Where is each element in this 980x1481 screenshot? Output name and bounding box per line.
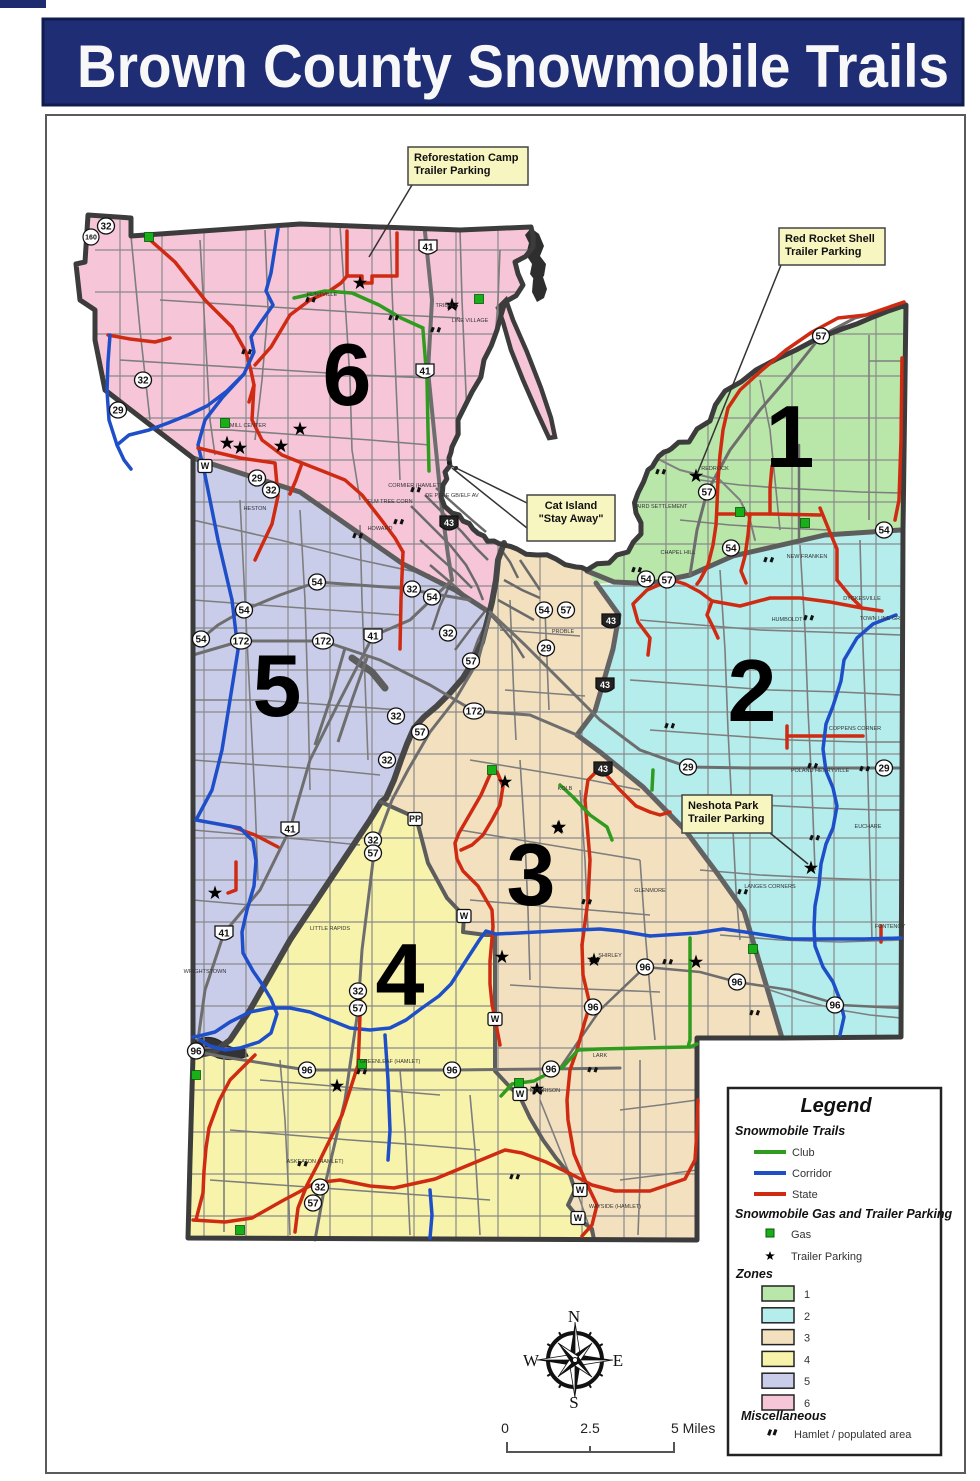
svg-text:DE PERE GB/ELF AV: DE PERE GB/ELF AV xyxy=(425,493,479,499)
svg-text:LANGES CORNERS: LANGES CORNERS xyxy=(744,884,796,890)
svg-text:LITTLE RAPIDS: LITTLE RAPIDS xyxy=(310,926,350,932)
svg-text:Red Rocket Shell: Red Rocket Shell xyxy=(785,233,875,245)
svg-text:WAYSIDE (HAMLET): WAYSIDE (HAMLET) xyxy=(589,1204,641,1210)
svg-text:Legend: Legend xyxy=(800,1095,872,1117)
svg-text:SHIRLEY: SHIRLEY xyxy=(598,953,622,959)
svg-text:41: 41 xyxy=(367,632,379,643)
svg-text:W: W xyxy=(574,1213,583,1223)
svg-text:CHAPEL HILL: CHAPEL HILL xyxy=(661,550,696,556)
svg-text:Neshota Park: Neshota Park xyxy=(688,800,759,812)
svg-text:54: 54 xyxy=(725,544,737,555)
svg-text:Brown County Snowmobile Trails: Brown County Snowmobile Trails xyxy=(77,33,949,100)
svg-text:172: 172 xyxy=(315,637,332,648)
svg-text:FLINTVILLE: FLINTVILLE xyxy=(307,292,338,298)
svg-text:5: 5 xyxy=(253,636,302,735)
svg-text:W: W xyxy=(516,1089,525,1099)
svg-text:EUCHARE: EUCHARE xyxy=(855,824,882,830)
svg-text:2: 2 xyxy=(728,641,777,740)
svg-text:160: 160 xyxy=(85,235,97,242)
svg-text:CORMIER (HAMLET): CORMIER (HAMLET) xyxy=(388,483,442,489)
svg-text:54: 54 xyxy=(878,526,890,537)
svg-text:Hamlet / populated area: Hamlet / populated area xyxy=(794,1429,912,1441)
svg-text:96: 96 xyxy=(545,1065,557,1076)
svg-text:"Stay Away": "Stay Away" xyxy=(539,513,604,525)
svg-text:BAIRD SETTLEMENT: BAIRD SETTLEMENT xyxy=(633,504,688,510)
svg-text:54: 54 xyxy=(311,578,323,589)
svg-text:W: W xyxy=(201,461,210,471)
svg-text:172: 172 xyxy=(466,707,483,718)
svg-text:57: 57 xyxy=(701,488,713,499)
svg-text:ASKEATON (HAMLET): ASKEATON (HAMLET) xyxy=(287,1159,344,1165)
svg-text:96: 96 xyxy=(446,1066,458,1077)
svg-text:29: 29 xyxy=(878,764,890,775)
svg-text:COPPENS CORNER: COPPENS CORNER xyxy=(829,726,881,732)
svg-text:E: E xyxy=(613,1351,623,1370)
svg-text:6: 6 xyxy=(323,325,372,424)
svg-text:LINE VILLAGE: LINE VILLAGE xyxy=(452,318,489,324)
svg-text:W: W xyxy=(460,911,469,921)
svg-text:3: 3 xyxy=(507,825,556,924)
svg-text:Snowmobile Trails: Snowmobile Trails xyxy=(735,1124,845,1138)
svg-text:REDROCK: REDROCK xyxy=(701,466,729,472)
svg-text:Trailer Parking: Trailer Parking xyxy=(785,246,861,258)
svg-text:Trailer Parking: Trailer Parking xyxy=(791,1251,862,1263)
svg-text:41: 41 xyxy=(419,367,431,378)
svg-text:3: 3 xyxy=(804,1333,810,1345)
svg-text:57: 57 xyxy=(307,1199,319,1210)
svg-text:57: 57 xyxy=(815,332,827,343)
svg-text:W: W xyxy=(576,1185,585,1195)
svg-text:ELM TREE CORN: ELM TREE CORN xyxy=(367,499,412,505)
svg-text:Reforestation Camp: Reforestation Camp xyxy=(414,152,519,164)
svg-text:DYCKESVILLE: DYCKESVILLE xyxy=(843,596,881,602)
svg-text:96: 96 xyxy=(829,1001,841,1012)
svg-text:POLAND HENRYVILLE: POLAND HENRYVILLE xyxy=(791,768,850,774)
svg-text:32: 32 xyxy=(442,629,454,640)
svg-text:57: 57 xyxy=(661,576,673,587)
svg-text:Gas: Gas xyxy=(791,1229,812,1241)
svg-text:LARK: LARK xyxy=(593,1053,608,1059)
svg-text:PP: PP xyxy=(409,814,421,824)
svg-text:29: 29 xyxy=(682,763,694,774)
svg-text:Club: Club xyxy=(792,1147,815,1159)
svg-text:TOWN LINE GR: TOWN LINE GR xyxy=(860,616,900,622)
svg-text:GLENMORE: GLENMORE xyxy=(634,888,666,894)
svg-text:PROBLE: PROBLE xyxy=(552,629,575,635)
svg-text:32: 32 xyxy=(137,376,149,387)
svg-text:KOLB: KOLB xyxy=(558,786,573,792)
svg-text:57: 57 xyxy=(465,657,477,668)
svg-text:96: 96 xyxy=(301,1066,313,1077)
svg-text:N: N xyxy=(568,1307,580,1326)
svg-text:0: 0 xyxy=(501,1420,509,1436)
svg-text:32: 32 xyxy=(381,756,393,767)
svg-text:32: 32 xyxy=(406,585,418,596)
svg-text:Snowmobile Gas and Trailer Par: Snowmobile Gas and Trailer Parking xyxy=(735,1207,953,1221)
svg-text:172: 172 xyxy=(233,637,250,648)
svg-text:MORRISON: MORRISON xyxy=(530,1088,560,1094)
svg-text:54: 54 xyxy=(640,575,652,586)
svg-text:57: 57 xyxy=(414,728,426,739)
svg-text:2.5: 2.5 xyxy=(580,1420,600,1436)
svg-text:4: 4 xyxy=(804,1354,810,1366)
svg-text:GREENLEAF (HAMLET): GREENLEAF (HAMLET) xyxy=(360,1059,421,1065)
svg-text:HOWARD: HOWARD xyxy=(368,526,393,532)
svg-text:WRIGHTSTOWN: WRIGHTSTOWN xyxy=(184,969,227,975)
svg-text:32: 32 xyxy=(100,222,112,233)
svg-text:1: 1 xyxy=(766,387,815,486)
svg-text:TRIBALS: TRIBALS xyxy=(436,303,459,309)
svg-text:MILL CENTER: MILL CENTER xyxy=(230,423,266,429)
svg-text:57: 57 xyxy=(367,849,379,860)
svg-text:43: 43 xyxy=(600,680,610,690)
svg-text:Trailer Parking: Trailer Parking xyxy=(414,165,490,177)
svg-text:1: 1 xyxy=(804,1289,810,1301)
svg-text:FONTENOY: FONTENOY xyxy=(875,924,906,930)
svg-text:54: 54 xyxy=(195,635,207,646)
svg-text:41: 41 xyxy=(284,825,296,836)
svg-text:54: 54 xyxy=(538,606,550,617)
svg-text:4: 4 xyxy=(376,925,425,1024)
svg-text:Cat Island: Cat Island xyxy=(545,500,598,512)
svg-text:96: 96 xyxy=(190,1047,202,1058)
svg-text:96: 96 xyxy=(731,978,743,989)
svg-text:29: 29 xyxy=(112,406,124,417)
svg-text:Trailer Parking: Trailer Parking xyxy=(688,813,764,825)
svg-text:5: 5 xyxy=(804,1376,810,1388)
svg-text:32: 32 xyxy=(314,1183,326,1194)
svg-text:43: 43 xyxy=(606,616,616,626)
svg-text:Miscellaneous: Miscellaneous xyxy=(741,1409,826,1423)
svg-text:5 Miles: 5 Miles xyxy=(671,1420,715,1436)
svg-text:32: 32 xyxy=(390,712,402,723)
svg-text:43: 43 xyxy=(598,764,608,774)
svg-text:96: 96 xyxy=(639,963,651,974)
svg-text:54: 54 xyxy=(426,593,438,604)
svg-text:96: 96 xyxy=(587,1003,599,1014)
svg-text:29: 29 xyxy=(251,474,263,485)
svg-text:43: 43 xyxy=(444,518,454,528)
svg-text:Corridor: Corridor xyxy=(792,1168,832,1180)
svg-text:54: 54 xyxy=(238,606,250,617)
svg-text:W: W xyxy=(491,1014,500,1024)
svg-text:41: 41 xyxy=(218,929,230,940)
svg-text:Zones: Zones xyxy=(735,1267,773,1281)
svg-text:57: 57 xyxy=(352,1004,364,1015)
svg-text:41: 41 xyxy=(422,243,434,254)
svg-text:State: State xyxy=(792,1189,818,1201)
svg-text:W: W xyxy=(523,1351,540,1370)
svg-text:32: 32 xyxy=(352,987,364,998)
svg-text:29: 29 xyxy=(540,644,552,655)
svg-text:32: 32 xyxy=(265,486,277,497)
svg-text:57: 57 xyxy=(560,606,572,617)
svg-text:2: 2 xyxy=(804,1311,810,1323)
svg-text:HUMBOLDT: HUMBOLDT xyxy=(772,617,804,623)
svg-text:HESTON: HESTON xyxy=(244,506,267,512)
svg-text:S: S xyxy=(569,1393,578,1412)
svg-text:NEW FRANKEN: NEW FRANKEN xyxy=(787,554,828,560)
